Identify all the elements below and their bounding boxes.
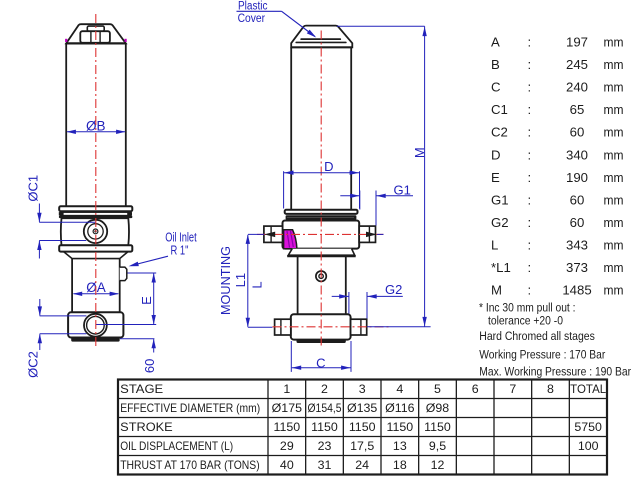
svg-text:1150: 1150 [349, 420, 376, 434]
svg-text:29: 29 [280, 439, 294, 453]
svg-text:B: B [491, 57, 500, 72]
svg-text:A: A [491, 35, 500, 50]
svg-text:Working Pressure : 170 Bar: Working Pressure : 170 Bar [479, 348, 605, 362]
svg-text::: : [528, 102, 532, 117]
svg-text:Cover: Cover [238, 13, 266, 25]
svg-text:mm: mm [604, 237, 624, 252]
svg-text:343: 343 [566, 237, 588, 252]
svg-text:340: 340 [566, 147, 588, 162]
svg-text:STROKE: STROKE [120, 420, 173, 434]
svg-text:Max. Working Pressure : 190 Ba: Max. Working Pressure : 190 Bar [479, 364, 631, 378]
svg-text:L: L [491, 237, 498, 252]
svg-text:Ø116: Ø116 [385, 401, 414, 415]
svg-text:M: M [412, 147, 427, 158]
svg-text:1150: 1150 [311, 420, 338, 434]
svg-text:18: 18 [393, 458, 407, 472]
svg-text:8: 8 [547, 382, 554, 396]
svg-text:mm: mm [604, 192, 624, 207]
svg-text:Ø98: Ø98 [426, 401, 450, 415]
svg-text:190: 190 [566, 170, 588, 185]
svg-text:Plastic: Plastic [238, 1, 268, 13]
svg-text:1150: 1150 [387, 420, 414, 434]
svg-text:2: 2 [321, 382, 328, 396]
svg-text:65: 65 [570, 102, 585, 117]
svg-text:373: 373 [566, 260, 588, 275]
svg-text:Ø154,5: Ø154,5 [308, 401, 342, 415]
svg-text:G1: G1 [491, 192, 509, 207]
svg-text:240: 240 [566, 80, 588, 95]
svg-text:17,5: 17,5 [350, 439, 374, 453]
svg-text:G2: G2 [491, 215, 509, 230]
svg-text:5: 5 [434, 382, 441, 396]
svg-text:M: M [491, 282, 502, 297]
svg-text:60: 60 [570, 192, 585, 207]
svg-text:mm: mm [604, 260, 624, 275]
svg-text:Ø175: Ø175 [272, 401, 302, 415]
svg-text:31: 31 [318, 458, 332, 472]
svg-text:40: 40 [280, 458, 294, 472]
svg-text:4: 4 [396, 382, 403, 396]
svg-text::: : [528, 80, 532, 95]
svg-text:197: 197 [566, 35, 588, 50]
svg-text:C1: C1 [491, 102, 508, 117]
svg-text:C2: C2 [491, 125, 508, 140]
svg-text:3: 3 [359, 382, 366, 396]
svg-text:mm: mm [604, 125, 624, 140]
svg-text:* Inc 30 mm pull out :: * Inc 30 mm pull out : [479, 300, 576, 314]
svg-text:mm: mm [604, 170, 624, 185]
svg-text:6: 6 [472, 382, 479, 396]
svg-text:1150: 1150 [424, 420, 451, 434]
svg-text:mm: mm [604, 80, 624, 95]
svg-text:60: 60 [570, 125, 585, 140]
svg-text:THRUST AT 170 BAR (TONS): THRUST AT 170 BAR (TONS) [120, 458, 260, 472]
svg-text:60: 60 [570, 215, 585, 230]
svg-text:mm: mm [604, 215, 624, 230]
svg-text::: : [528, 260, 532, 275]
svg-text:G2: G2 [385, 282, 402, 297]
svg-text:EFFECTIVE DIAMETER (mm): EFFECTIVE DIAMETER (mm) [120, 401, 260, 415]
svg-text:12: 12 [431, 458, 445, 472]
svg-text:245: 245 [566, 57, 588, 72]
svg-text:23: 23 [318, 439, 332, 453]
svg-text:D: D [491, 147, 501, 162]
svg-text:mm: mm [604, 57, 624, 72]
svg-text:ØC2: ØC2 [26, 351, 41, 378]
svg-text::: : [528, 192, 532, 207]
svg-text:mm: mm [604, 147, 624, 162]
svg-text::: : [528, 125, 532, 140]
svg-text:E: E [491, 170, 500, 185]
svg-text:1: 1 [283, 382, 290, 396]
svg-text:5750: 5750 [574, 420, 602, 434]
svg-text:24: 24 [355, 458, 369, 472]
svg-text:13: 13 [393, 439, 407, 453]
svg-text:C: C [316, 355, 325, 370]
svg-text:L1: L1 [233, 273, 248, 287]
svg-text:L: L [250, 281, 265, 288]
svg-text::: : [528, 215, 532, 230]
svg-text:60: 60 [142, 359, 157, 373]
svg-text:R 1": R 1" [171, 244, 189, 258]
svg-text:E: E [139, 296, 154, 305]
svg-text::: : [528, 57, 532, 72]
svg-text:ØC1: ØC1 [26, 175, 41, 202]
svg-text:7: 7 [509, 382, 516, 396]
svg-text:MOUNTING: MOUNTING [218, 246, 233, 315]
svg-text:Hard Chromed all stages: Hard Chromed all stages [479, 329, 595, 343]
svg-text::: : [528, 282, 532, 297]
svg-text::: : [528, 170, 532, 185]
svg-text:1485: 1485 [562, 282, 591, 297]
svg-text:Oil Inlet: Oil Inlet [165, 231, 197, 245]
svg-text:Ø135: Ø135 [347, 401, 377, 415]
svg-text:mm: mm [604, 102, 624, 117]
svg-text::: : [528, 237, 532, 252]
svg-text:mm: mm [604, 35, 624, 50]
svg-text:G1: G1 [394, 183, 411, 198]
svg-text:100: 100 [578, 439, 599, 453]
svg-text:C: C [491, 80, 501, 95]
svg-text:*L1: *L1 [491, 260, 511, 275]
svg-text::: : [528, 147, 532, 162]
svg-text::: : [528, 35, 532, 50]
svg-text:9,5: 9,5 [429, 439, 446, 453]
svg-text:1150: 1150 [274, 420, 301, 434]
svg-text:OIL DISPLACEMENT (L): OIL DISPLACEMENT (L) [120, 439, 233, 453]
svg-text:TOTAL: TOTAL [570, 382, 606, 396]
svg-text:tolerance +20 -0: tolerance +20 -0 [488, 314, 563, 328]
svg-text:D: D [324, 159, 333, 174]
svg-text:STAGE: STAGE [120, 382, 163, 396]
svg-text:mm: mm [604, 282, 624, 297]
